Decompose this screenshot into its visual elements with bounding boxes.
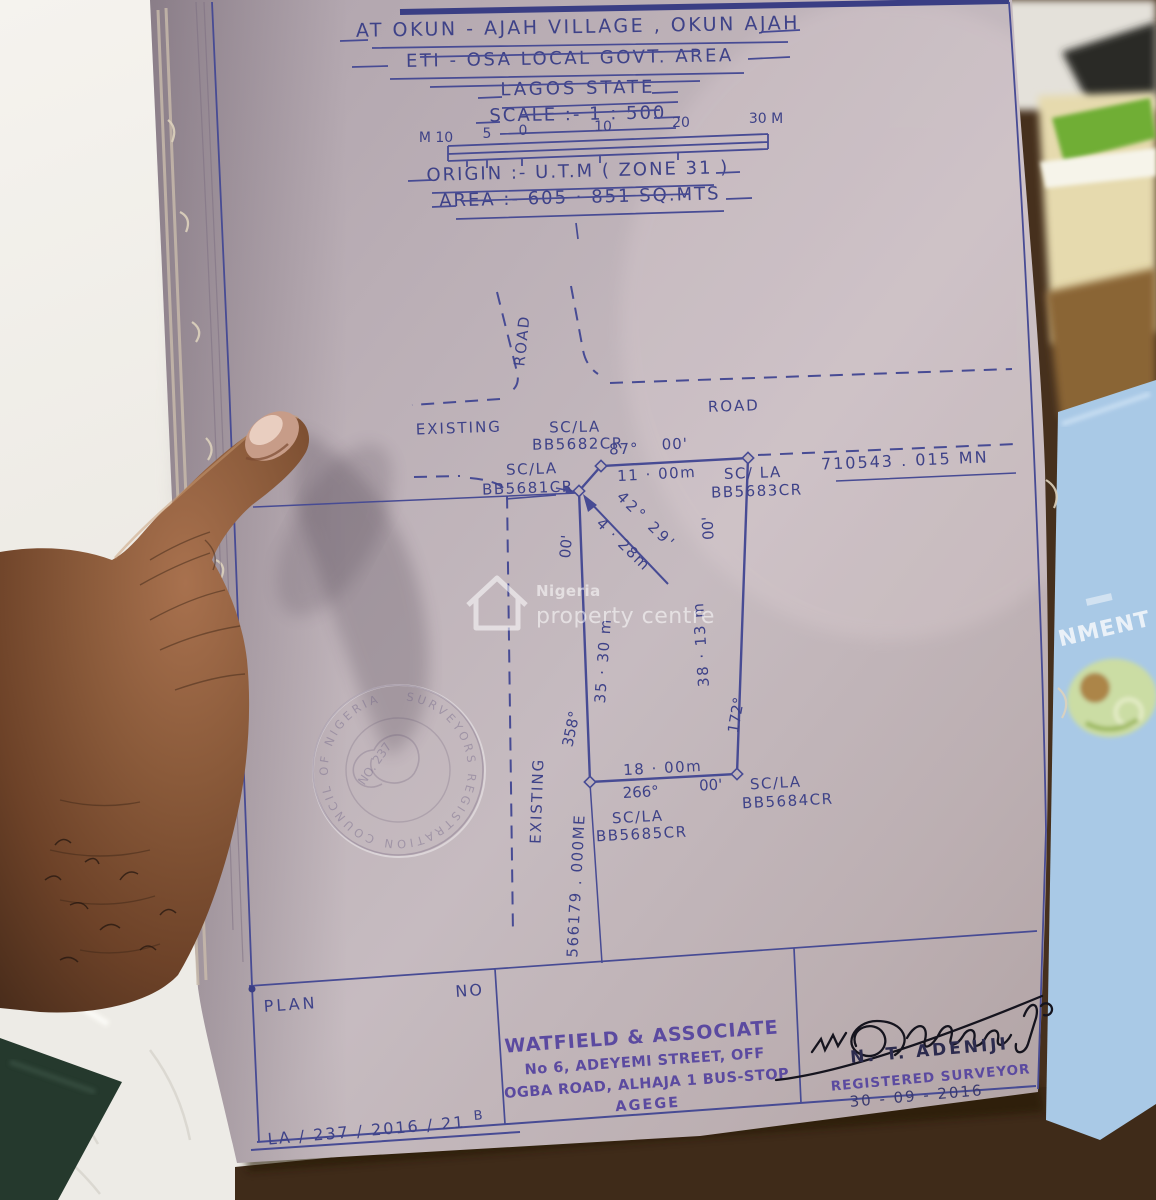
bearing-left-min: 00'	[556, 534, 576, 559]
bearing-bottom-min: 00'	[699, 775, 723, 794]
scale-tick-3: 10	[594, 119, 612, 135]
beacon-b5681-line1: SC/LA	[506, 459, 558, 479]
existing-road-top-label: EXISTING	[415, 418, 502, 439]
road-label-horizontal: ROAD	[708, 396, 760, 416]
scale-tick-1: 5	[483, 126, 492, 142]
bearing-right-min: 00'	[698, 516, 717, 540]
beacon-b5683-line2: BB5683CR	[711, 480, 803, 501]
existing-road-left-label: EXISTING	[527, 757, 548, 844]
photo-of-survey-plan: { "photo_scene": { "wall_color": "#f0ede…	[0, 0, 1156, 1200]
bearing-bottom-deg: 266°	[622, 782, 659, 802]
title-state: LAGOS STATE	[500, 77, 655, 101]
beacon-b5681-line2: BB5681CR	[482, 477, 574, 498]
blue-folder-cover	[1046, 380, 1156, 1140]
scale-tick-2: 0	[519, 123, 528, 139]
beacon-b5683-line1: SC/ LA	[724, 463, 782, 483]
beacon-b5684-line1: SC/LA	[750, 773, 802, 794]
beacon-b5682-line1: SC/LA	[549, 418, 601, 437]
watermark-brand-top: Nigeria	[536, 582, 601, 600]
scale-tick-0: M 10	[419, 130, 453, 146]
bearing-top-min: 00'	[661, 435, 688, 454]
plan-number-suffix: B	[473, 1108, 483, 1124]
no-label: NO	[455, 980, 485, 1001]
scale-tick-5: 30 M	[749, 111, 783, 127]
blue-folder: NMENT	[1046, 380, 1156, 1140]
plan-label: PLAN	[263, 993, 318, 1016]
survey-plan-photo-canvas: NMENT SURVEYORS REGISTRATION COUNCIL OF …	[0, 0, 1156, 1200]
scale-tick-4: 20	[672, 115, 690, 131]
bearing-top-deg: 87°	[609, 439, 639, 458]
watermark-brand-bottom: property centre	[536, 604, 715, 629]
title-block-corner-mark	[249, 986, 256, 993]
